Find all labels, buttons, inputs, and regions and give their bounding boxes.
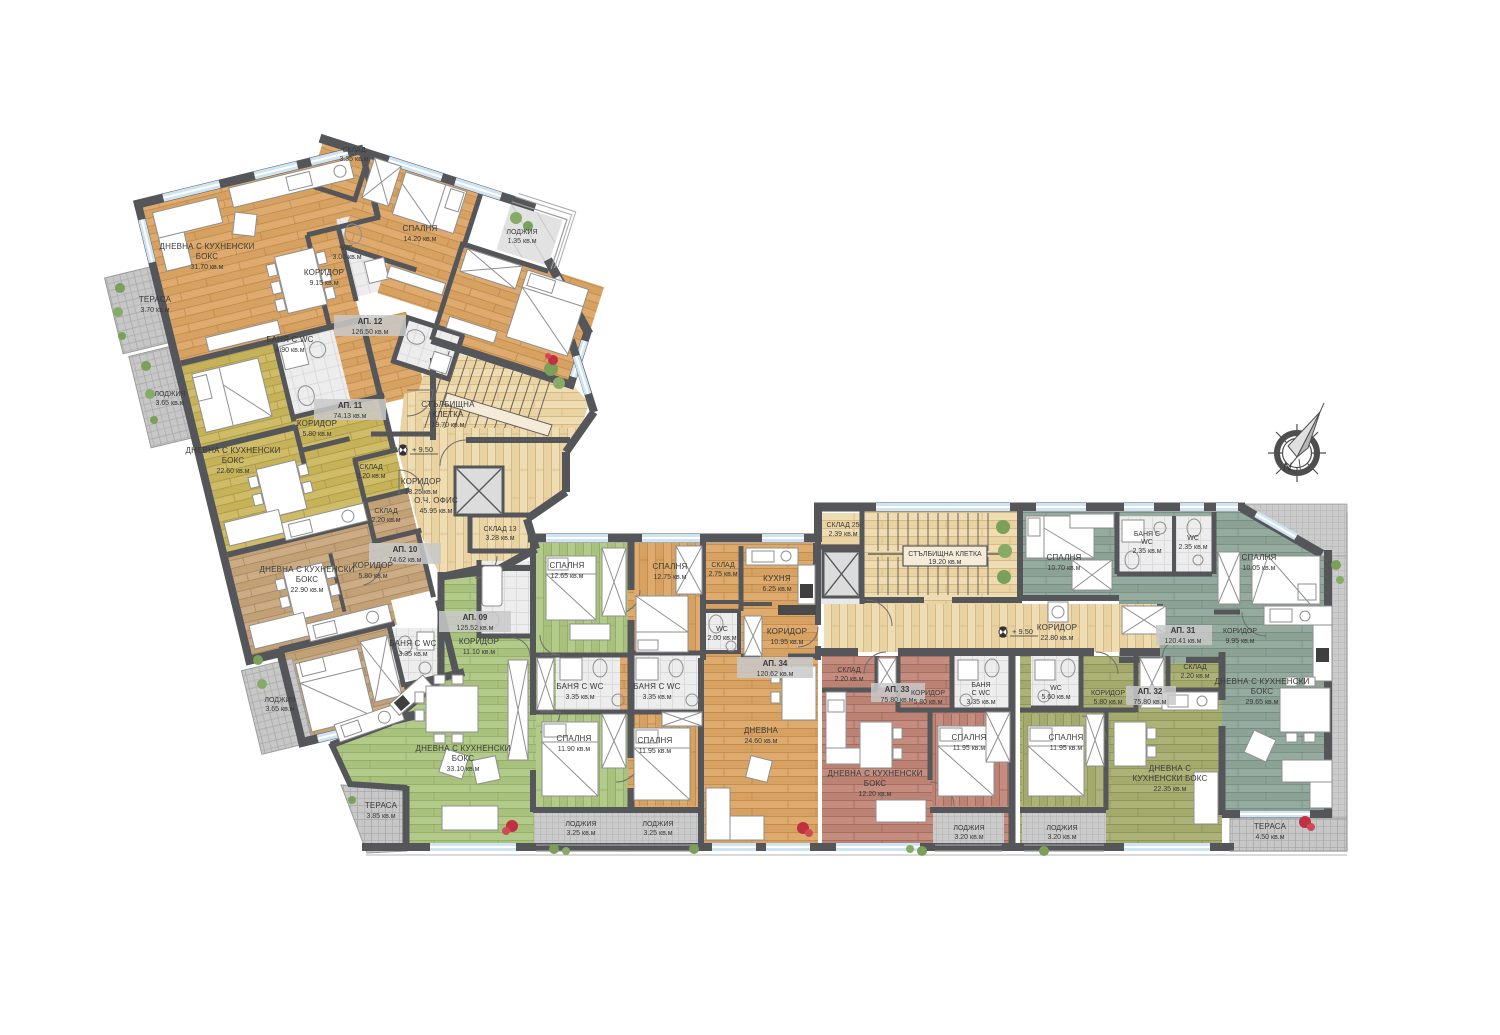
svg-text:СКЛАД: СКЛАД — [359, 464, 383, 471]
svg-text:75.80 кв.м: 75.80 кв.м — [1133, 699, 1166, 706]
svg-text:5.80 кв.м: 5.80 кв.м — [302, 431, 331, 438]
svg-text:СПАЛНЯ: СПАЛНЯ — [1046, 553, 1081, 562]
svg-text:120.41 кв.м: 120.41 кв.м — [1165, 638, 1202, 645]
svg-text:12.75 кв.м: 12.75 кв.м — [653, 574, 686, 581]
svg-text:КОРИДОР: КОРИДОР — [1091, 690, 1125, 697]
svg-text:12.65 кв.м: 12.65 кв.м — [550, 573, 583, 580]
svg-text:9.95 кв.м: 9.95 кв.м — [1225, 638, 1254, 645]
svg-text:КОРИДОР: КОРИДОР — [767, 627, 807, 636]
svg-text:АП. 32: АП. 32 — [1138, 687, 1163, 696]
svg-text:4.50 кв.м: 4.50 кв.м — [1255, 834, 1284, 841]
svg-text:19.20 кв.м: 19.20 кв.м — [928, 559, 961, 566]
svg-text:74.13 кв.м: 74.13 кв.м — [333, 413, 366, 420]
svg-text:2.20 кв.м: 2.20 кв.м — [1180, 673, 1209, 680]
svg-text:11.95 кв.м: 11.95 кв.м — [953, 745, 986, 752]
svg-text:ЛОДЖИЯ: ЛОДЖИЯ — [565, 821, 596, 828]
svg-text:КУХНЯ: КУХНЯ — [763, 574, 791, 583]
svg-text:3.20 кв.м: 3.20 кв.м — [954, 834, 983, 841]
svg-text:31.70 кв.м: 31.70 кв.м — [190, 264, 223, 271]
svg-text:БОКС: БОКС — [222, 456, 245, 465]
svg-text:ЛОДЖИЯ: ЛОДЖИЯ — [506, 229, 537, 236]
svg-text:22.60 кв.м: 22.60 кв.м — [216, 468, 249, 475]
svg-text:КОРИДОР: КОРИДОР — [1223, 628, 1257, 635]
svg-text:СКЛАД 25: СКЛАД 25 — [826, 522, 859, 529]
svg-text:5.80 кв.м: 5.80 кв.м — [358, 573, 387, 580]
svg-text:СПАЛНЯ: СПАЛНЯ — [637, 736, 672, 745]
svg-text:БОКС: БОКС — [452, 754, 475, 763]
svg-text:WC: WC — [716, 626, 728, 633]
svg-text:24.60 кв.м: 24.60 кв.м — [744, 738, 777, 745]
svg-text:WC: WC — [1187, 535, 1199, 542]
svg-text:3.00 кв.м: 3.00 кв.м — [332, 254, 361, 261]
svg-text:11.90 кв.м: 11.90 кв.м — [558, 746, 591, 753]
svg-text:БАНЯ С: БАНЯ С — [1134, 531, 1160, 538]
svg-text:ДНЕВНА С КУХНЕНСКИ: ДНЕВНА С КУХНЕНСКИ — [827, 769, 922, 778]
svg-text:СПАЛНЯ: СПАЛНЯ — [402, 224, 437, 233]
svg-text:WC: WC — [341, 245, 353, 252]
svg-text:ДНЕВНА С КУХНЕНСКИ: ДНЕВНА С КУХНЕНСКИ — [185, 446, 280, 455]
svg-text:СПАЛНЯ: СПАЛНЯ — [652, 562, 687, 571]
svg-text:ЛОДЖИЯ: ЛОДЖИЯ — [953, 825, 984, 832]
svg-text:СКЛАД: СКЛАД — [374, 508, 398, 515]
svg-text:N: N — [1283, 460, 1292, 474]
svg-text:125.52 кв.м: 125.52 кв.м — [457, 625, 494, 632]
svg-text:БАНЯ С WC: БАНЯ С WC — [389, 639, 436, 648]
svg-text:АП. 34: АП. 34 — [763, 659, 788, 668]
svg-text:3.35 кв.м: 3.35 кв.м — [642, 694, 671, 701]
svg-text:АП. 11: АП. 11 — [338, 401, 363, 410]
svg-text:3.35 кв.м: 3.35 кв.м — [565, 694, 594, 701]
svg-text:ДНЕВНА С КУХНЕНСКИ: ДНЕВНА С КУХНЕНСКИ — [259, 565, 354, 574]
svg-text:75.80 кв.м: 75.80 кв.м — [880, 697, 913, 704]
svg-text:СТЪЛБИЩНА: СТЪЛБИЩНА — [421, 400, 475, 409]
svg-text:СПАЛНЯ: СПАЛНЯ — [1241, 553, 1276, 562]
svg-text:СПАЛНЯ: СПАЛНЯ — [951, 733, 986, 742]
svg-text:АП. 31: АП. 31 — [1171, 626, 1196, 635]
svg-text:11.10 кв.м: 11.10 кв.м — [463, 649, 496, 656]
svg-text:29.65 кв.м: 29.65 кв.м — [1245, 699, 1278, 706]
svg-text:3.20 кв.м: 3.20 кв.м — [1047, 834, 1076, 841]
svg-text:1.35 кв.м: 1.35 кв.м — [507, 238, 536, 245]
svg-text:АП. 09: АП. 09 — [463, 613, 488, 622]
svg-text:3.25 кв.м: 3.25 кв.м — [643, 830, 672, 837]
svg-text:КОРИДОР: КОРИДОР — [304, 268, 344, 277]
svg-text:КЛЕТКА: КЛЕТКА — [432, 410, 464, 419]
svg-text:3.65 кв.м: 3.65 кв.м — [265, 706, 294, 713]
svg-text:ТЕРАСА: ТЕРАСА — [365, 801, 398, 810]
svg-text:3.85 кв.м: 3.85 кв.м — [366, 813, 395, 820]
svg-text:С WC: С WC — [972, 690, 991, 697]
svg-text:ДНЕВНА С КУХНЕНСКИ: ДНЕВНА С КУХНЕНСКИ — [415, 744, 510, 753]
svg-text:КОРИДОР: КОРИДОР — [401, 477, 441, 486]
svg-text:11.95 кв.м: 11.95 кв.м — [1050, 745, 1083, 752]
svg-text:БАНЯ: БАНЯ — [971, 682, 990, 689]
svg-text:10.70 кв.м: 10.70 кв.м — [1047, 565, 1080, 572]
svg-text:ТЕРАСА: ТЕРАСА — [1254, 822, 1287, 831]
svg-text:2.20 кв.м: 2.20 кв.м — [356, 473, 385, 480]
svg-text:АП. 33: АП. 33 — [885, 685, 910, 694]
svg-text:АП. 12: АП. 12 — [358, 317, 383, 326]
svg-text:ДНЕВНА С КУХНЕНСКИ: ДНЕВНА С КУХНЕНСКИ — [1214, 677, 1309, 686]
svg-text:2.20 кв.м: 2.20 кв.м — [371, 517, 400, 524]
svg-text:9.15 кв.м: 9.15 кв.м — [309, 280, 338, 287]
svg-text:БОКС: БОКС — [864, 779, 887, 788]
svg-text:2.00 кв.м: 2.00 кв.м — [707, 635, 736, 642]
svg-text:КОРИДОР: КОРИДОР — [297, 419, 337, 428]
svg-text:120.62 кв.м: 120.62 кв.м — [757, 671, 794, 678]
svg-text:СКЛАД 13: СКЛАД 13 — [483, 526, 516, 533]
svg-text:ДНЕВНА С КУХНЕНСКИ: ДНЕВНА С КУХНЕНСКИ — [159, 242, 254, 251]
svg-text:WC: WC — [1050, 685, 1062, 692]
svg-text:БОКС: БОКС — [1251, 687, 1274, 696]
svg-text:КОРИДОР: КОРИДОР — [911, 690, 945, 697]
svg-text:БОКС: БОКС — [196, 252, 219, 261]
svg-text:19.70 кв.м: 19.70 кв.м — [431, 422, 464, 429]
svg-text:КОРИДОР: КОРИДОР — [1037, 623, 1077, 632]
svg-text:+ 9.50: + 9.50 — [412, 445, 433, 454]
svg-text:КОРИДОР: КОРИДОР — [353, 561, 393, 570]
svg-text:3.35 кв.м: 3.35 кв.м — [966, 699, 995, 706]
svg-text:ЛОДЖИЯ: ЛОДЖИЯ — [642, 821, 673, 828]
svg-text:6.25 кв.м: 6.25 кв.м — [762, 586, 791, 593]
svg-text:22.90 кв.м: 22.90 кв.м — [290, 587, 323, 594]
svg-text:10.95 кв.м: 10.95 кв.м — [770, 639, 803, 646]
svg-text:12.20 кв.м: 12.20 кв.м — [858, 791, 891, 798]
svg-text:БОКС: БОКС — [296, 575, 319, 584]
svg-text:КУХНЕНСКИ БОКС: КУХНЕНСКИ БОКС — [1133, 774, 1208, 783]
svg-text:22.80 кв.м: 22.80 кв.м — [1040, 635, 1073, 642]
svg-text:ЛОДЖИЯ: ЛОДЖИЯ — [1046, 825, 1077, 832]
svg-text:СПАЛНЯ: СПАЛНЯ — [549, 561, 584, 570]
svg-text:3.65 кв.м: 3.65 кв.м — [155, 400, 184, 407]
svg-text:БАНЯ С WC: БАНЯ С WC — [266, 335, 313, 344]
svg-text:ТЕРАСА: ТЕРАСА — [139, 295, 172, 304]
svg-text:ЛОДЖИЯ: ЛОДЖИЯ — [264, 697, 295, 704]
svg-text:ЛОДЖИЯ: ЛОДЖИЯ — [154, 391, 185, 398]
svg-text:СПАЛНЯ: СПАЛНЯ — [556, 734, 591, 743]
svg-text:2.35 кв.м: 2.35 кв.м — [1132, 548, 1161, 555]
svg-text:WC: WC — [1141, 539, 1153, 546]
svg-text:СКЛАД: СКЛАД — [342, 147, 366, 154]
svg-text:11.95 кв.м: 11.95 кв.м — [639, 748, 672, 755]
svg-text:3.70 кв.м: 3.70 кв.м — [140, 307, 169, 314]
svg-text:СПАЛНЯ: СПАЛНЯ — [1048, 733, 1083, 742]
svg-text:33.10 кв.м: 33.10 кв.м — [446, 766, 479, 773]
svg-text:10.05 кв.м: 10.05 кв.м — [1242, 565, 1275, 572]
svg-text:126.50 кв.м: 126.50 кв.м — [352, 329, 389, 336]
svg-text:СКЛАД: СКЛАД — [711, 562, 735, 569]
svg-text:4.90 кв.м: 4.90 кв.м — [275, 347, 304, 354]
svg-text:5.60 кв.м: 5.60 кв.м — [1041, 694, 1070, 701]
svg-text:О.Ч. ОФИС: О.Ч. ОФИС — [414, 496, 458, 505]
svg-text:ДНЕВНА С: ДНЕВНА С — [1149, 764, 1192, 773]
svg-text:5.80 кв.м: 5.80 кв.м — [1093, 699, 1122, 706]
svg-text:45.95 кв.м: 45.95 кв.м — [419, 508, 452, 515]
svg-text:13.25 кв.м: 13.25 кв.м — [404, 489, 437, 496]
svg-text:5.80 кв.м: 5.80 кв.м — [913, 699, 942, 706]
svg-text:74.62 кв.м: 74.62 кв.м — [388, 557, 421, 564]
svg-text:2.20 кв.м: 2.20 кв.м — [834, 676, 863, 683]
svg-text:2.75 кв.м: 2.75 кв.м — [708, 571, 737, 578]
svg-text:2.35 кв.м: 2.35 кв.м — [1178, 544, 1207, 551]
svg-text:3.35 кв.м: 3.35 кв.м — [339, 156, 368, 163]
svg-text:КОРИДОР: КОРИДОР — [459, 637, 499, 646]
svg-text:3.28 кв.м: 3.28 кв.м — [485, 535, 514, 542]
svg-text:2.39 кв.м: 2.39 кв.м — [828, 531, 857, 538]
svg-text:3.35 кв.м: 3.35 кв.м — [398, 651, 427, 658]
svg-text:СТЪЛБИЩНА КЛЕТКА: СТЪЛБИЩНА КЛЕТКА — [908, 551, 982, 558]
svg-text:ДНЕВНА: ДНЕВНА — [744, 726, 779, 735]
svg-text:3.25 кв.м: 3.25 кв.м — [566, 830, 595, 837]
svg-text:СКЛАД: СКЛАД — [1183, 664, 1207, 671]
svg-text:АП. 10: АП. 10 — [393, 545, 418, 554]
svg-text:СКЛАД: СКЛАД — [837, 667, 861, 674]
svg-text:БАНЯ С WC: БАНЯ С WC — [556, 682, 603, 691]
svg-text:22.35 кв.м: 22.35 кв.м — [1153, 786, 1186, 793]
svg-text:БАНЯ С WC: БАНЯ С WC — [633, 682, 680, 691]
svg-text:+ 9.50: + 9.50 — [1012, 627, 1033, 636]
svg-text:14.20 кв.м: 14.20 кв.м — [403, 236, 436, 243]
